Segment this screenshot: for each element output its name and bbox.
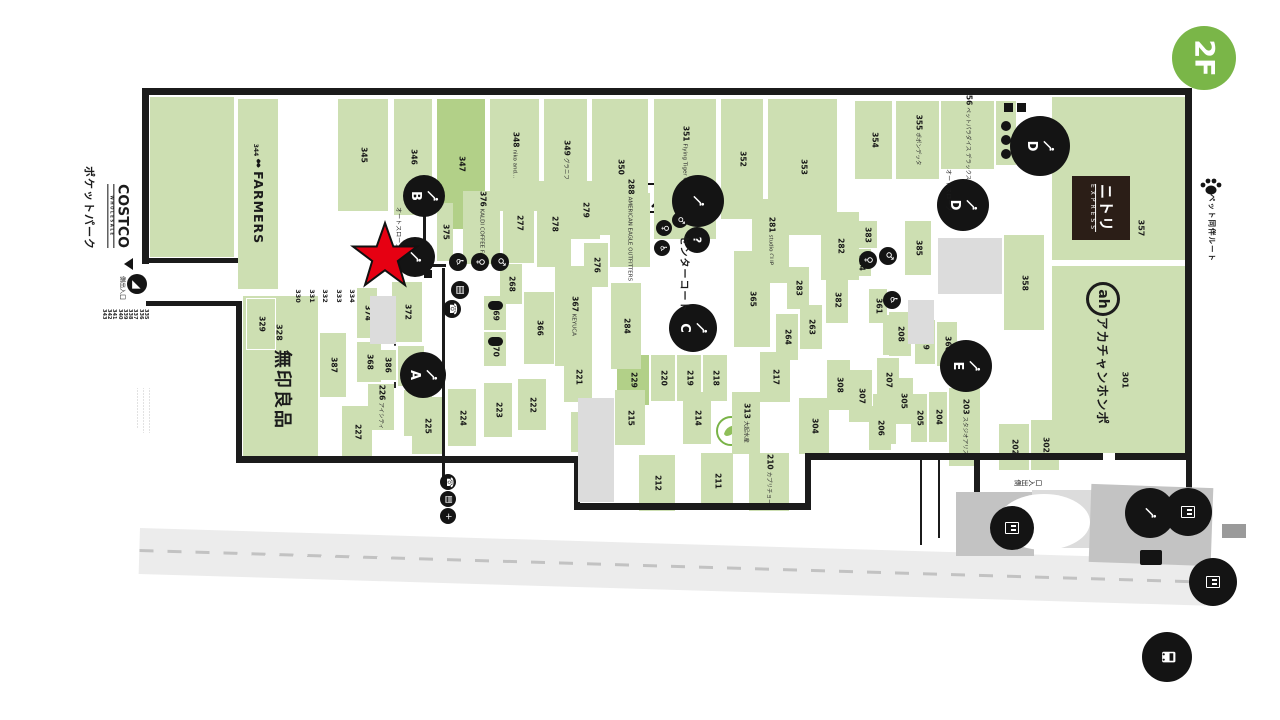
womens-toilet-icon: ♀ bbox=[859, 251, 877, 269]
store-label-307: 307 bbox=[856, 388, 865, 404]
store-block-375: 375 bbox=[437, 203, 453, 261]
fine-print: …………………………………………………………………………… bbox=[112, 388, 152, 468]
store-block-367: 367KEYUCA bbox=[555, 266, 592, 366]
store-label-278: 278 bbox=[550, 216, 559, 232]
store-block-224: 224 bbox=[448, 389, 476, 446]
akachanhonpo-name: アカチャンホンポ bbox=[1094, 316, 1110, 426]
store-block-365: 365 bbox=[734, 251, 770, 347]
store-block-206: 206 bbox=[869, 406, 891, 450]
center-court-label: センターコート bbox=[676, 244, 690, 304]
farmers-name: FARMERS bbox=[251, 171, 266, 244]
map-wall bbox=[920, 460, 922, 545]
store-block-345: 345 bbox=[338, 99, 388, 211]
store-label-282: 282 bbox=[836, 238, 845, 254]
toilet-icon bbox=[1001, 135, 1011, 145]
store-label-382: 382 bbox=[833, 292, 842, 308]
slope-entrance-icon: ◢ bbox=[127, 274, 147, 294]
store-label-353: 353 bbox=[798, 159, 807, 175]
store-block-205: 205 bbox=[911, 394, 927, 442]
store-label-313: 313大起水産 bbox=[742, 403, 751, 443]
store-label-268: 268 bbox=[507, 276, 516, 292]
accessible-toilet-icon: ♿ bbox=[449, 253, 467, 271]
map-glyph-rect bbox=[488, 301, 503, 310]
womens-toilet-icon: ♀ bbox=[656, 220, 672, 236]
store-label-224: 224 bbox=[458, 410, 467, 426]
escalator-b-badge: B bbox=[403, 175, 445, 217]
store-label-350: 350 bbox=[616, 159, 625, 175]
store-label-304: 304 bbox=[810, 418, 819, 434]
store-label-288: 288AMERICAN EAGLE OUTFITTERS bbox=[626, 179, 635, 281]
toilet-icon bbox=[1001, 149, 1011, 159]
nitori-name: ニトリ bbox=[1097, 184, 1114, 232]
auto-slope-label: オートスロープ bbox=[940, 160, 954, 220]
muji-name: 無印良品 bbox=[271, 350, 292, 430]
store-label-211: 211 bbox=[713, 473, 722, 489]
store-block-386: 386 bbox=[378, 350, 396, 380]
coin-locker-icon: ▤ bbox=[451, 281, 469, 299]
coin-locker-icon: ▤ bbox=[440, 491, 456, 507]
store-label-385: 385 bbox=[914, 240, 923, 256]
store-label-305: 305 bbox=[899, 393, 908, 409]
store-label-221: 221 bbox=[574, 369, 583, 385]
store-block-284: 284 bbox=[611, 283, 641, 369]
store-block-264: 264 bbox=[776, 314, 798, 360]
escalator-c-badge: C bbox=[669, 304, 717, 352]
store-label-349: 349グラニフ bbox=[561, 140, 570, 180]
service-strip-331: 331 bbox=[306, 216, 318, 302]
map-glyph-rect bbox=[1140, 550, 1162, 565]
floor-badge-2f: 2F bbox=[1172, 26, 1236, 90]
store-label-358: 358 bbox=[1020, 275, 1029, 291]
store-block-313: 313大起水産 bbox=[732, 392, 760, 454]
road-centerline bbox=[139, 549, 1214, 584]
toilet-icon bbox=[1001, 121, 1011, 131]
store-block-302: 302 bbox=[1031, 420, 1059, 470]
escalator-d2-badge: D bbox=[1010, 116, 1070, 176]
store-block-387: 387 bbox=[320, 333, 346, 397]
store-label-210: 210カプリチョーザ bbox=[765, 454, 774, 510]
map-wall bbox=[938, 460, 940, 538]
store-label-217: 217 bbox=[771, 369, 780, 385]
map-wall bbox=[236, 306, 242, 463]
map-wall bbox=[805, 453, 811, 510]
store-block-263: 263 bbox=[800, 305, 822, 349]
store-label-204: 204 bbox=[934, 409, 943, 425]
store-block-382: 382 bbox=[826, 277, 848, 323]
store-label-264: 264 bbox=[783, 329, 792, 345]
store-block-227: 227 bbox=[342, 406, 372, 458]
corridor-gray bbox=[578, 398, 614, 502]
store-label-365: 365 bbox=[748, 291, 757, 307]
map-glyph-rect bbox=[424, 260, 432, 268]
mens-toilet-icon: ♂ bbox=[672, 212, 688, 228]
store-label-283: 283 bbox=[794, 280, 803, 296]
store-label-207: 207 bbox=[884, 372, 893, 388]
store-label-225: 225 bbox=[423, 418, 432, 434]
store-label-375: 375 bbox=[441, 224, 450, 240]
costco-sub: WHOLESALE bbox=[108, 184, 115, 248]
store-block-385: 385 bbox=[905, 221, 931, 275]
store-block-222: 222 bbox=[518, 379, 546, 430]
map-glyph-rect bbox=[1004, 103, 1013, 112]
store-label-329: 329 bbox=[257, 316, 266, 332]
store-label-203: 203スタジオアリス bbox=[960, 399, 969, 455]
store-block-356: 356ペットパラダイス デラックス bbox=[941, 101, 994, 169]
accessible-toilet-icon: ♿ bbox=[654, 240, 670, 256]
store-label-263: 263 bbox=[807, 319, 816, 335]
store-label-219: 219 bbox=[685, 370, 694, 386]
store-block-288: 288AMERICAN EAGLE OUTFITTERS bbox=[610, 193, 650, 267]
store-block-221: 221 bbox=[564, 352, 592, 402]
store-label-206: 206 bbox=[876, 420, 885, 436]
store-label-212: 212 bbox=[653, 475, 662, 491]
elevator-icon bbox=[990, 506, 1034, 550]
store-label-205: 205 bbox=[915, 410, 924, 426]
map-glyph-rect bbox=[424, 250, 432, 258]
store-label-386: 386 bbox=[383, 357, 392, 373]
store-block-214: 214 bbox=[683, 392, 711, 444]
nitori-express-logo: ニトリ EXPRESS bbox=[1072, 176, 1130, 240]
service-strip-330: 330 bbox=[292, 216, 304, 302]
store-block-277: 277 bbox=[503, 183, 534, 263]
mall-floor-map-2f: 344 FARMERS 328 無印良品 ニトリ EXPRESS ah bbox=[0, 0, 1280, 720]
service-strip-332: 332 bbox=[319, 216, 331, 302]
store-block-202: 202 bbox=[999, 424, 1029, 470]
aed-icon: + bbox=[440, 508, 456, 524]
plaza-shape bbox=[1222, 524, 1246, 538]
map-wall bbox=[236, 456, 580, 463]
phone-icon: ☎ bbox=[443, 300, 461, 318]
costco-wordmark: COSTCO bbox=[114, 184, 130, 248]
farmers-number: 344 bbox=[252, 144, 259, 157]
store-block-283: 283 bbox=[787, 267, 809, 309]
store-label-308: 308 bbox=[834, 377, 843, 393]
bus-stop-icon bbox=[1142, 632, 1192, 682]
costco-area bbox=[150, 97, 234, 257]
store-label-276: 276 bbox=[592, 257, 601, 273]
map-wall bbox=[574, 503, 811, 510]
store-label-383: 383 bbox=[863, 227, 872, 243]
store-block-344-farmers: 344 FARMERS bbox=[238, 99, 278, 289]
store-label-346: 346 bbox=[409, 149, 418, 165]
corridor-gray bbox=[938, 238, 1002, 294]
map-wall bbox=[1103, 453, 1115, 460]
womens-toilet-icon: ♀ bbox=[471, 253, 489, 271]
store-label-368: 368 bbox=[365, 354, 374, 370]
corridor-gray bbox=[908, 300, 934, 344]
store-label-223: 223 bbox=[494, 402, 503, 418]
store-block-279: 279 bbox=[570, 181, 600, 239]
store-block-366: 366 bbox=[524, 292, 554, 364]
store-number-357: 357 bbox=[1134, 198, 1148, 258]
store-label-279: 279 bbox=[581, 202, 590, 218]
elevator-icon bbox=[1164, 488, 1212, 536]
corridor-gray bbox=[370, 296, 396, 344]
store-block-383: 383 bbox=[857, 221, 877, 248]
store-label-345: 345 bbox=[359, 147, 368, 163]
store-label-214: 214 bbox=[693, 410, 702, 426]
pocket-park-label: ポケットパーク bbox=[80, 148, 96, 268]
store-label-218: 218 bbox=[711, 370, 720, 386]
store-label-226: 226アイシティ bbox=[377, 385, 386, 430]
store-label-208: 208 bbox=[896, 326, 905, 342]
store-label-366: 366 bbox=[535, 320, 544, 336]
store-block-329: 329 bbox=[246, 298, 276, 350]
escalator-a-badge: A bbox=[400, 352, 446, 398]
costco-entrance-label: 側出入口 bbox=[114, 258, 128, 318]
map-wall bbox=[142, 88, 1192, 95]
store-label-229: 229 bbox=[629, 372, 638, 388]
map-wall bbox=[146, 258, 238, 263]
phone-icon: ☎ bbox=[440, 474, 456, 490]
store-block-204: 204 bbox=[929, 392, 947, 442]
service-strip-333: 333 bbox=[333, 216, 345, 302]
mens-toilet-icon: ♂ bbox=[491, 253, 509, 271]
store-block-220: 220 bbox=[651, 355, 675, 401]
map-wall bbox=[1185, 95, 1192, 460]
store-block-207: 207 bbox=[877, 358, 899, 402]
escalator-e-badge: E bbox=[940, 340, 992, 392]
store-block-278: 278 bbox=[537, 181, 571, 267]
map-canvas: 344 FARMERS 328 無印良品 ニトリ EXPRESS ah bbox=[0, 0, 1280, 720]
store-block-358: 358 bbox=[1004, 235, 1044, 330]
store-label-387: 387 bbox=[329, 357, 338, 373]
store-label-227: 227 bbox=[353, 424, 362, 440]
map-glyph-rect bbox=[488, 337, 503, 346]
south-entrance-label: 側出入口 bbox=[1014, 470, 1042, 489]
map-wall bbox=[142, 88, 149, 264]
store-label-372: 372 bbox=[403, 304, 412, 320]
akachanhonpo-logo: ah bbox=[1086, 282, 1120, 316]
store-block-215: 215 bbox=[615, 390, 645, 445]
store-label-215: 215 bbox=[626, 410, 635, 426]
store-block-304: 304 bbox=[799, 398, 829, 454]
store-label-355: 355ポポンデッタ bbox=[913, 115, 922, 166]
current-location-star bbox=[350, 220, 420, 290]
store-label-347: 347 bbox=[457, 156, 466, 172]
map-wall bbox=[805, 453, 1192, 460]
store-block-355: 355ポポンデッタ bbox=[896, 101, 939, 179]
store-block-354: 354 bbox=[855, 101, 892, 179]
accessible-toilet-icon: ♿ bbox=[883, 291, 901, 309]
map-wall bbox=[146, 301, 242, 306]
mens-toilet-icon: ♂ bbox=[879, 247, 897, 265]
store-label-277: 277 bbox=[514, 215, 523, 231]
leaf-icon bbox=[252, 158, 259, 171]
store-label-284: 284 bbox=[622, 318, 631, 334]
map-glyph-rect bbox=[424, 270, 432, 278]
store-block-372: 372 bbox=[392, 282, 422, 342]
store-label-302: 302 bbox=[1041, 437, 1050, 453]
store-label-367: 367KEYUCA bbox=[569, 296, 578, 336]
map-glyph-rect bbox=[1017, 103, 1026, 112]
store-label-222: 222 bbox=[528, 397, 537, 413]
store-label-220: 220 bbox=[659, 370, 668, 386]
store-label-348: 348niko and... bbox=[510, 132, 519, 178]
store-label-352: 352 bbox=[738, 151, 747, 167]
store-block-308: 308 bbox=[827, 360, 850, 410]
store-block-225: 225 bbox=[412, 397, 442, 454]
nitori-sub: EXPRESS bbox=[1088, 184, 1096, 232]
store-block-211: 211 bbox=[701, 453, 733, 509]
store-label-354: 354 bbox=[869, 132, 878, 148]
store-label-356: 356ペットパラダイス デラックス bbox=[963, 90, 972, 181]
pet-route-label: ペット同伴ルート bbox=[1204, 198, 1218, 258]
store-number-301: 301 bbox=[1118, 350, 1132, 410]
costco-logo: COSTCO WHOLESALE bbox=[104, 168, 134, 264]
store-label-361: 361 bbox=[874, 298, 883, 314]
store-block-223: 223 bbox=[484, 383, 512, 437]
elevator-icon bbox=[1189, 558, 1237, 606]
